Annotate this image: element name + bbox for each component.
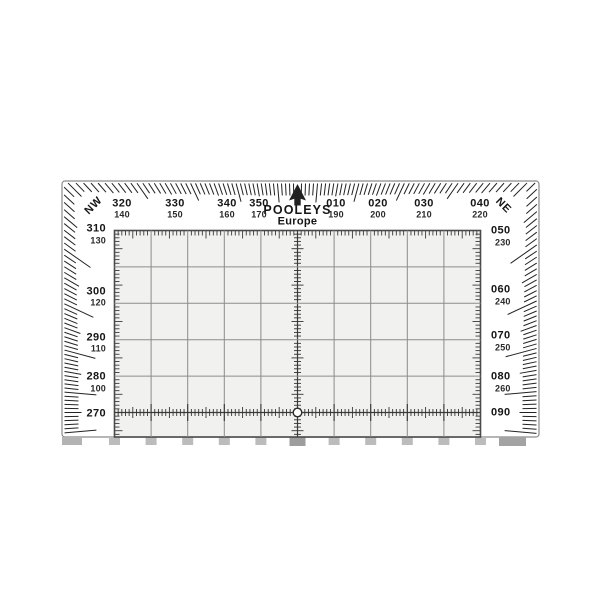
center-hole-icon — [293, 408, 302, 417]
grid-lines — [115, 231, 481, 438]
navigation-plotter — [0, 0, 600, 600]
shadow-tabs — [62, 437, 526, 446]
page-background: POOLEYS Europe NW NE 3201403301503401603… — [0, 0, 600, 600]
